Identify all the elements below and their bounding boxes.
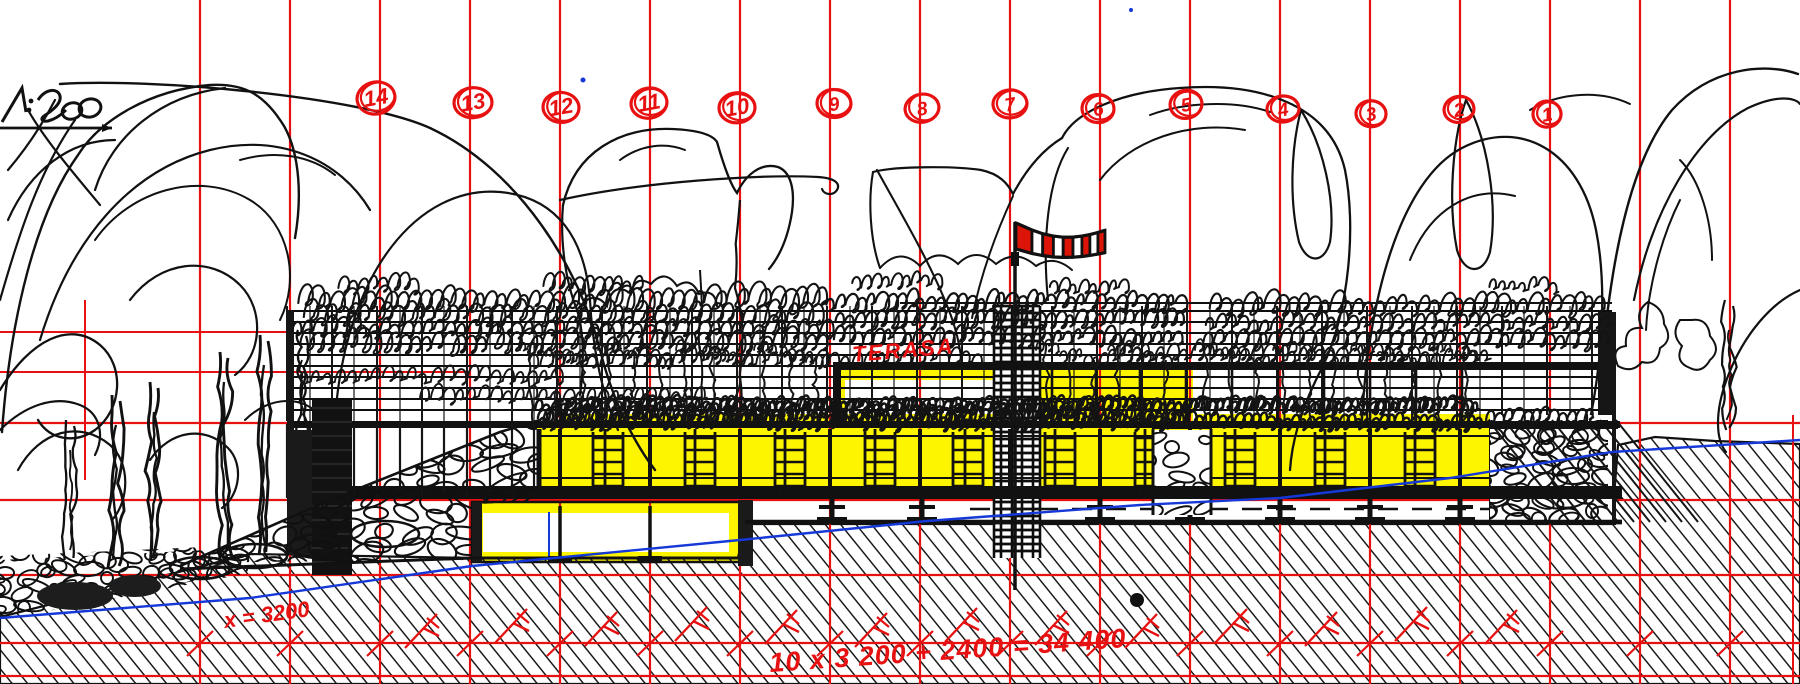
svg-text:12: 12 bbox=[547, 92, 576, 121]
svg-text:10: 10 bbox=[723, 93, 752, 122]
svg-text:11: 11 bbox=[635, 88, 662, 117]
svg-text:14: 14 bbox=[362, 83, 390, 112]
svg-text:13: 13 bbox=[459, 88, 487, 117]
